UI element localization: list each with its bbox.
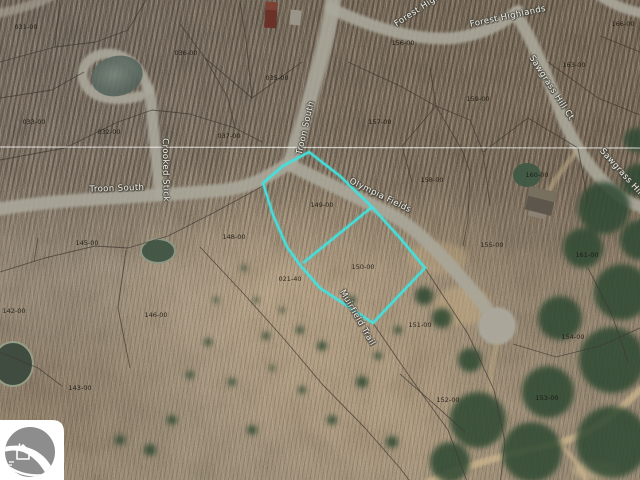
forest-layer [115, 128, 640, 480]
highlighted-parcel-outline [263, 152, 425, 323]
road-crooked-stick [148, 88, 160, 196]
highlighted-parcel-divider [303, 207, 372, 263]
road-troon-south-west [0, 163, 290, 210]
section-line [0, 147, 640, 148]
road-top-left [0, 0, 52, 14]
building-house-lot-160 [524, 186, 557, 221]
roads-layer [0, 0, 640, 345]
road-forest-highlands [330, 8, 518, 39]
aerial-parcel-map: 031-00036-00035-00156-00166-00163-00159-… [0, 0, 640, 480]
road-top-right [600, 0, 640, 14]
building-shed [289, 10, 302, 26]
driveway-house [548, 152, 576, 193]
map-overlay [0, 0, 640, 480]
pond-house-lot [513, 163, 541, 187]
building-red-house [264, 2, 278, 29]
watermark-logo [0, 420, 64, 480]
cul-de-sac-olympia [478, 307, 516, 345]
ponds-layer [0, 50, 541, 386]
